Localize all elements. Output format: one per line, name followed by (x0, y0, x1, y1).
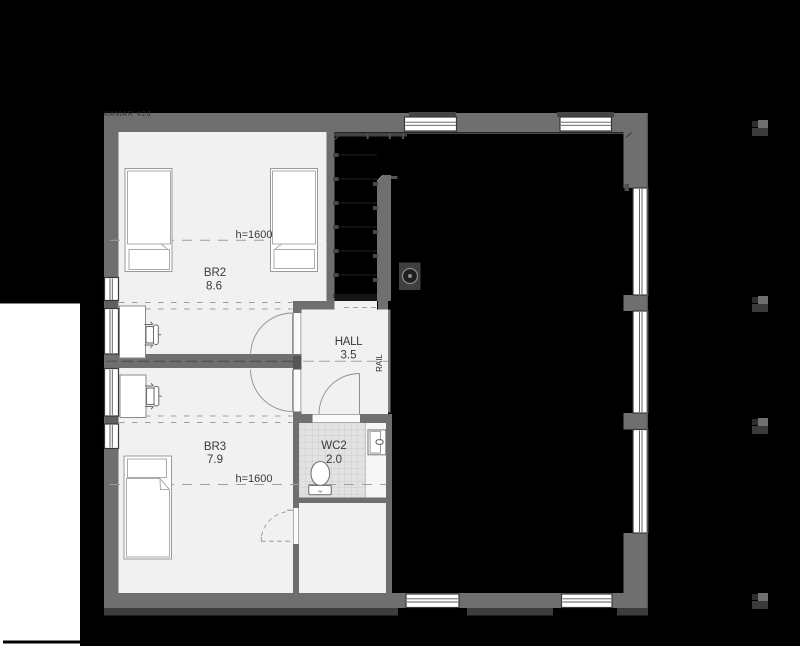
svg-text:HALL: HALL (335, 336, 363, 348)
svg-text:2.0: 2.0 (326, 454, 342, 466)
svg-text:h=1600: h=1600 (235, 229, 272, 241)
svg-text:BR2: BR2 (204, 267, 226, 279)
svg-text:7.9: 7.9 (207, 454, 223, 466)
svg-text:h=1600: h=1600 (235, 473, 272, 485)
svg-text:3.5: 3.5 (341, 350, 357, 362)
svg-text:8.6: 8.6 (206, 281, 222, 293)
svg-text:RAIL: RAIL (375, 354, 384, 372)
svg-text:KAMAR 420: KAMAR 420 (104, 111, 152, 118)
svg-text:BR3: BR3 (204, 441, 226, 453)
svg-text:WC2: WC2 (321, 440, 347, 452)
